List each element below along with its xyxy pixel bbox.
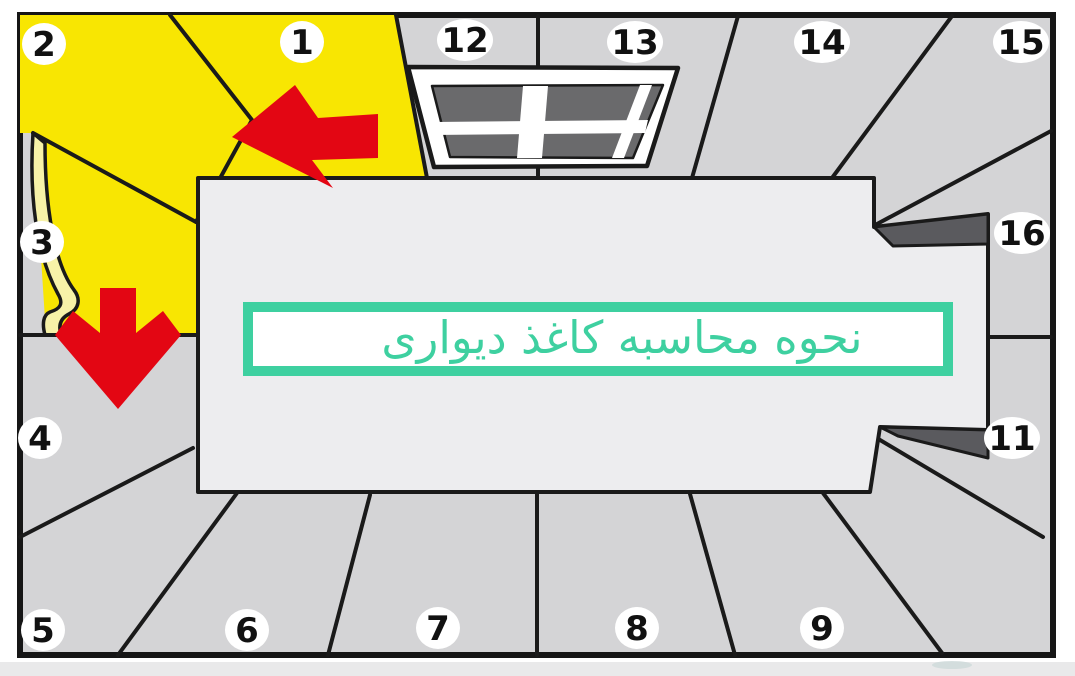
strip-label-4: 4 [18,417,62,459]
strip-label-number: 15 [997,23,1044,63]
strip-label-1: 1 [280,21,324,63]
watermark-smudge [932,661,972,669]
strip-label-5: 5 [21,609,65,651]
strip-label-14: 14 [794,21,850,63]
strip-label-number: 6 [235,611,259,651]
strip-label-13: 13 [607,21,663,63]
bottom-band [0,662,1075,676]
strip-label-number: 12 [441,21,488,61]
diagram-title: نحوه محاسبه کاغذ دیواری [381,311,862,364]
strip-label-16: 16 [994,212,1050,254]
strip-label-number: 9 [810,609,834,649]
strip-label-11: 11 [984,417,1040,459]
strip-label-number: 14 [798,23,845,63]
strip-label-number: 4 [28,419,52,459]
diagram-canvas: نحوه محاسبه کاغذ دیواری 1234567891112131… [0,0,1075,676]
strip-label-number: 11 [988,419,1035,459]
strip-label-6: 6 [225,609,269,651]
strip-label-number: 3 [30,223,54,263]
strip-label-7: 7 [416,607,460,649]
strip-label-number: 8 [625,609,649,649]
window-4-pane-icon [408,67,678,167]
strip-label-2: 2 [22,23,66,65]
strip-label-8: 8 [615,607,659,649]
strip-label-number: 16 [998,214,1045,254]
wallpaper-calculation-diagram: نحوه محاسبه کاغذ دیواری 1234567891112131… [0,0,1075,676]
strip-label-number: 7 [426,609,450,649]
strip-label-12: 12 [437,19,493,61]
strip-label-number: 5 [31,611,55,651]
strip-label-number: 13 [611,23,658,63]
strip-label-number: 2 [32,25,56,65]
strip-label-9: 9 [800,607,844,649]
strip-label-3: 3 [20,221,64,263]
window-mullion-horizontal [432,120,648,135]
strip-label-15: 15 [993,21,1049,63]
strip-label-number: 1 [290,23,314,63]
